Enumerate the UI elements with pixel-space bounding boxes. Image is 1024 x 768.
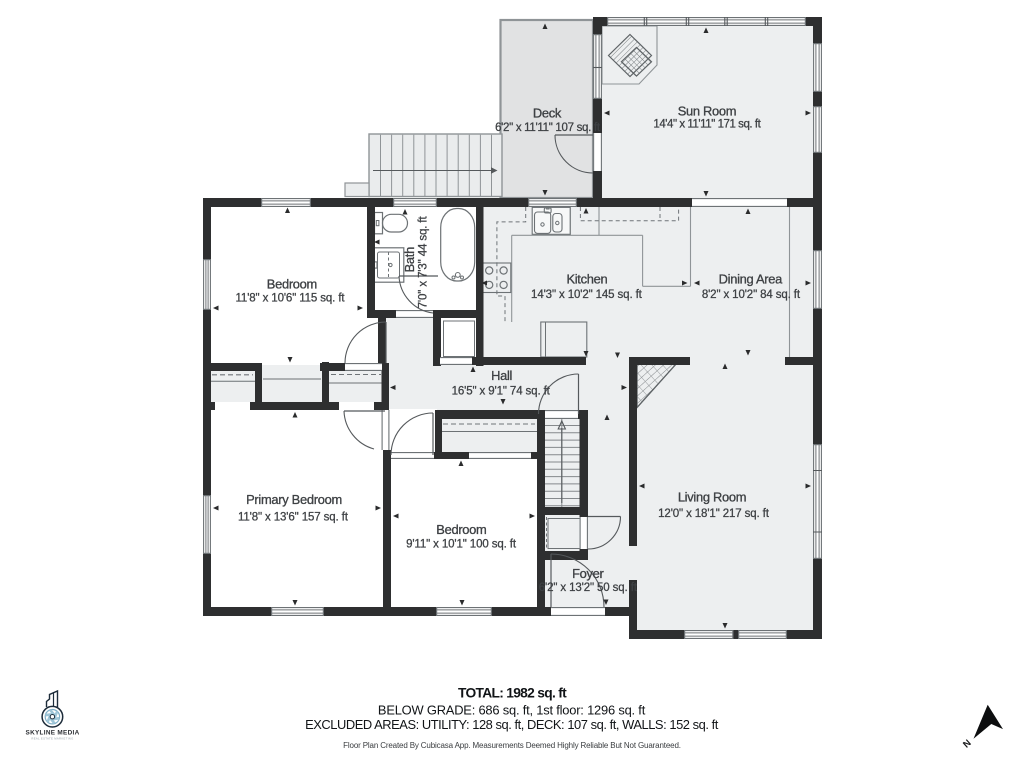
svg-text:N: N <box>961 738 974 751</box>
svg-text:14'4" x 11'11" 171 sq. ft: 14'4" x 11'11" 171 sq. ft <box>653 118 761 130</box>
svg-text:BELOW GRADE: 686 sq. ft, 1st f: BELOW GRADE: 686 sq. ft, 1st floor: 1296… <box>378 702 646 717</box>
svg-text:6'2" x 11'11" 107 sq. ft: 6'2" x 11'11" 107 sq. ft <box>495 122 601 134</box>
svg-text:16'5" x 9'1" 74 sq. ft: 16'5" x 9'1" 74 sq. ft <box>452 386 551 398</box>
svg-text:12'0" x 18'1" 217 sq. ft: 12'0" x 18'1" 217 sq. ft <box>658 508 770 520</box>
svg-text:Bedroom: Bedroom <box>267 277 317 292</box>
svg-text:TOTAL: 1982 sq. ft: TOTAL: 1982 sq. ft <box>458 686 567 701</box>
svg-text:Bedroom: Bedroom <box>436 522 486 537</box>
svg-text:Hall: Hall <box>491 368 512 383</box>
svg-text:8'2" x 10'2" 84 sq. ft: 8'2" x 10'2" 84 sq. ft <box>702 289 801 301</box>
svg-text:Foyer: Foyer <box>572 566 604 581</box>
svg-text:Bath: Bath <box>402 247 417 272</box>
svg-text:Dining Area: Dining Area <box>719 271 783 286</box>
svg-text:EXCLUDED AREAS: UTILITY: 128 s: EXCLUDED AREAS: UTILITY: 128 sq. ft, DEC… <box>305 717 719 732</box>
svg-text:Sun Room: Sun Room <box>678 104 737 119</box>
svg-text:9'11" x 10'1" 100 sq. ft: 9'11" x 10'1" 100 sq. ft <box>406 539 517 551</box>
svg-text:Deck: Deck <box>533 106 562 121</box>
svg-text:Primary Bedroom: Primary Bedroom <box>246 492 342 507</box>
svg-text:SKYLINE MEDIA: SKYLINE MEDIA <box>26 730 80 737</box>
svg-text:14'3" x 10'2" 145 sq. ft: 14'3" x 10'2" 145 sq. ft <box>531 289 643 301</box>
svg-text:11'8" x 10'6" 115 sq. ft: 11'8" x 10'6" 115 sq. ft <box>236 293 346 305</box>
svg-text:REAL ESTATE MARKETING: REAL ESTATE MARKETING <box>31 737 73 741</box>
svg-text:Living Room: Living Room <box>678 489 746 504</box>
svg-text:Kitchen: Kitchen <box>566 271 607 286</box>
svg-text:11'8" x 13'6" 157 sq. ft: 11'8" x 13'6" 157 sq. ft <box>238 511 349 523</box>
svg-text:Floor Plan Created By Cubicasa: Floor Plan Created By Cubicasa App. Meas… <box>343 741 681 750</box>
svg-text:7'0" x 7'3" 44 sq. ft: 7'0" x 7'3" 44 sq. ft <box>417 216 429 309</box>
svg-text:6'2" x 13'2" 50 sq. ft: 6'2" x 13'2" 50 sq. ft <box>539 582 638 594</box>
